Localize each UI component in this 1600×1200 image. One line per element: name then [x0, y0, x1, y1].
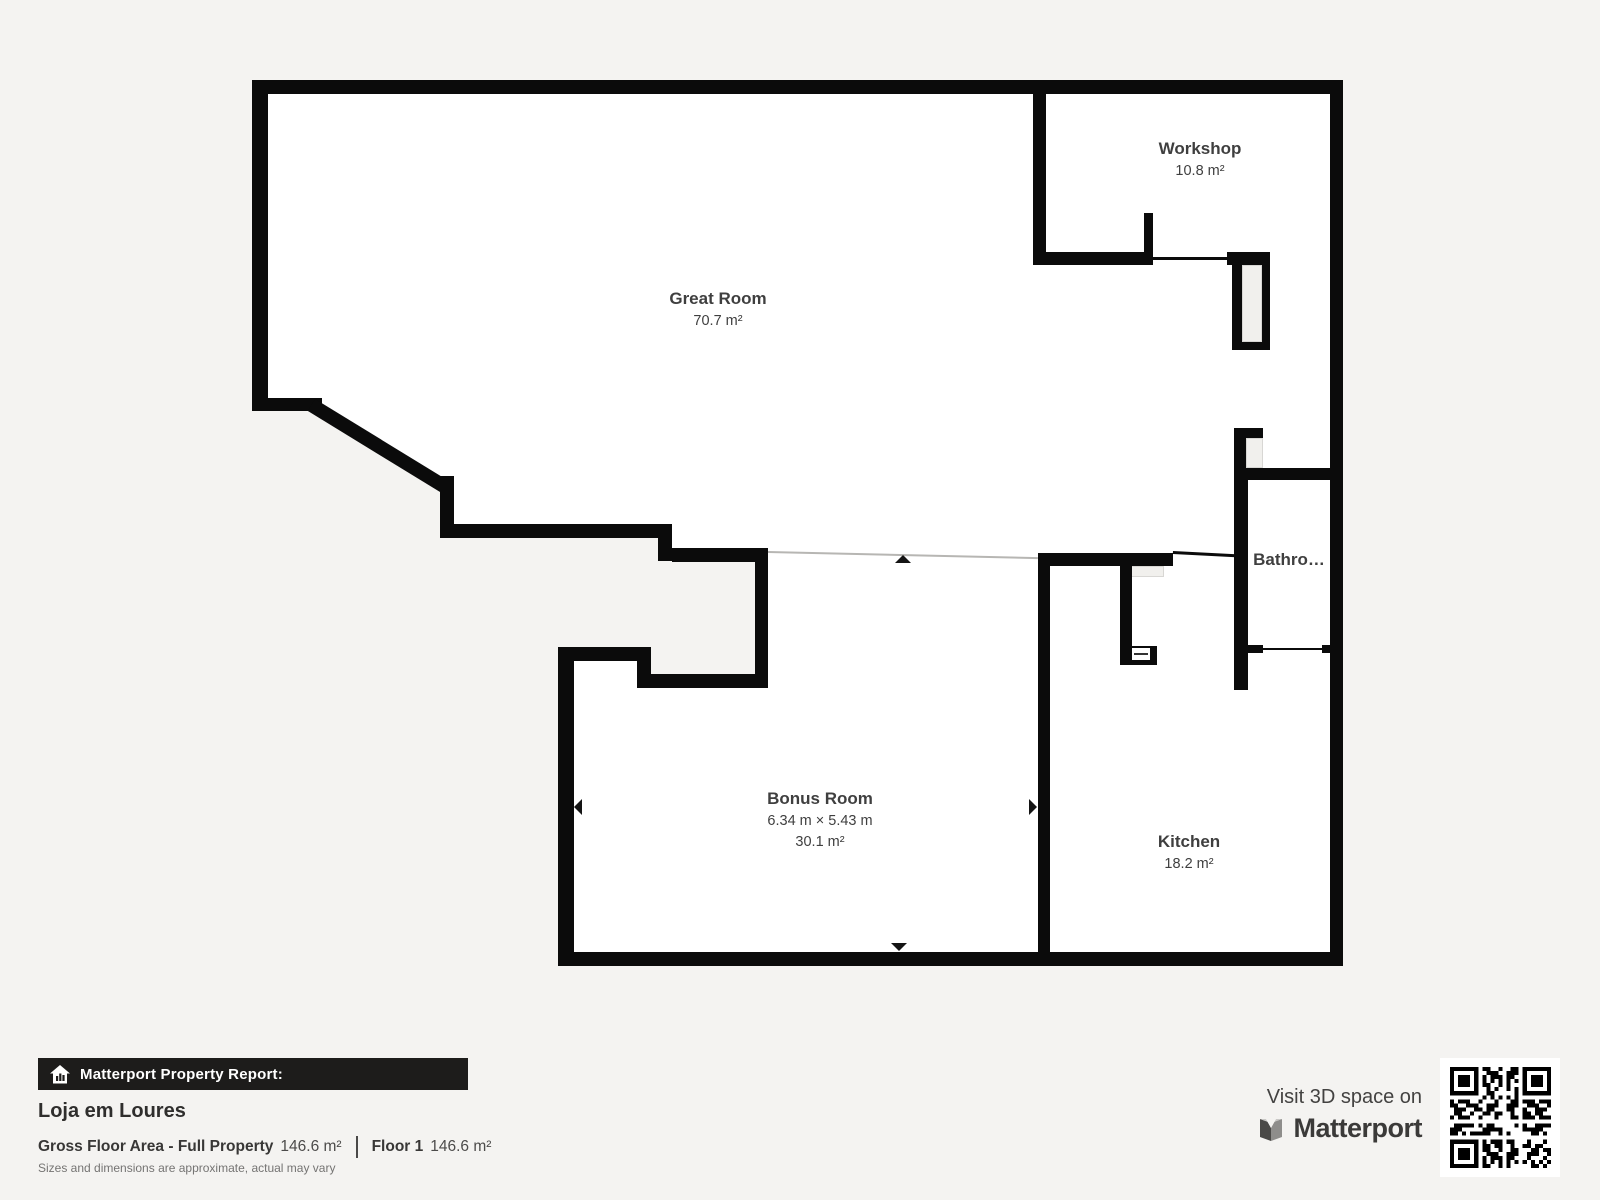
plan-interior-kitchen — [1044, 560, 1336, 960]
room-name: Bonus Room — [720, 788, 920, 810]
room-label-bonus-room: Bonus Room 6.34 m × 5.43 m 30.1 m² — [720, 788, 920, 852]
wall-segment — [1038, 553, 1173, 566]
matterport-logo-icon — [1256, 1114, 1286, 1144]
room-dimensions: 6.34 m × 5.43 m — [720, 812, 920, 831]
wall-segment — [252, 80, 1343, 94]
wall-segment — [1232, 265, 1242, 350]
room-area: 10.8 m² — [1100, 162, 1300, 181]
floor-label: Floor 1 — [372, 1138, 424, 1156]
wall-segment — [1144, 213, 1153, 252]
qr-code — [1440, 1058, 1560, 1177]
gross-floor-area-value: 146.6 m² — [280, 1138, 341, 1156]
room-label-bathroom: Bathro… — [1250, 549, 1328, 571]
room-area: 18.2 m² — [1089, 855, 1289, 874]
wall-segment — [658, 524, 672, 561]
floor-value: 146.6 m² — [430, 1138, 491, 1156]
matterport-logo: Matterport — [1256, 1113, 1423, 1144]
wall-segment — [1246, 468, 1343, 480]
room-area: 70.7 m² — [618, 312, 818, 331]
matterport-link[interactable]: Visit 3D space on Matterport — [1240, 1086, 1422, 1144]
wall-segment — [637, 674, 768, 688]
stats-row: Gross Floor Area - Full Property 146.6 m… — [38, 1136, 491, 1158]
door-opening-line — [1153, 257, 1227, 260]
room-area: 30.1 m² — [720, 833, 920, 852]
duct-niche — [1242, 265, 1262, 342]
stats-divider — [356, 1136, 358, 1158]
wall-segment — [672, 548, 768, 562]
room-name: Bathro… — [1250, 549, 1328, 571]
wall-segment — [1262, 265, 1270, 350]
dimension-arrow-right-icon — [1029, 799, 1037, 815]
wall-segment — [1033, 252, 1153, 265]
floor-plan-page: Great Room 70.7 m² Workshop 10.8 m² Bath… — [0, 0, 1600, 1200]
matterport-wordmark: Matterport — [1294, 1113, 1423, 1144]
wall-segment — [558, 952, 1343, 966]
property-title: Loja em Loures — [38, 1100, 186, 1123]
room-label-kitchen: Kitchen 18.2 m² — [1089, 831, 1289, 874]
wall-segment — [1232, 342, 1270, 350]
report-bar: Matterport Property Report: — [38, 1058, 468, 1090]
room-name: Workshop — [1100, 138, 1300, 160]
wall-segment — [1038, 553, 1050, 966]
wall-segment — [1248, 645, 1263, 653]
wall-segment — [1330, 80, 1343, 966]
wall-segment — [1033, 94, 1046, 265]
door-opening-line — [1263, 648, 1322, 650]
visit-3d-label: Visit 3D space on — [1267, 1086, 1422, 1109]
room-name: Great Room — [618, 288, 818, 310]
room-label-great-room: Great Room 70.7 m² — [618, 288, 818, 331]
dimension-arrow-down-icon — [891, 943, 907, 951]
report-bar-label: Matterport Property Report: — [80, 1066, 283, 1083]
room-label-workshop: Workshop 10.8 m² — [1100, 138, 1300, 181]
wall-segment — [447, 524, 672, 538]
dimension-arrow-left-icon — [574, 799, 582, 815]
dimension-arrow-up-icon — [895, 555, 911, 563]
gross-floor-area-label: Gross Floor Area - Full Property — [38, 1138, 273, 1156]
duct-niche — [1131, 566, 1164, 577]
room-name: Kitchen — [1089, 831, 1289, 853]
wall-segment — [252, 80, 268, 411]
wall-segment — [1227, 252, 1270, 265]
wall-segment — [558, 647, 574, 966]
wall-segment — [755, 548, 768, 688]
house-chart-icon — [50, 1065, 70, 1084]
wall-segment — [1234, 480, 1248, 690]
fixture-line — [1134, 653, 1148, 655]
duct-niche — [1246, 438, 1263, 468]
disclaimer-text: Sizes and dimensions are approximate, ac… — [38, 1161, 335, 1175]
plan-interior-bonus-a — [760, 550, 1046, 960]
wall-segment — [1322, 645, 1343, 653]
